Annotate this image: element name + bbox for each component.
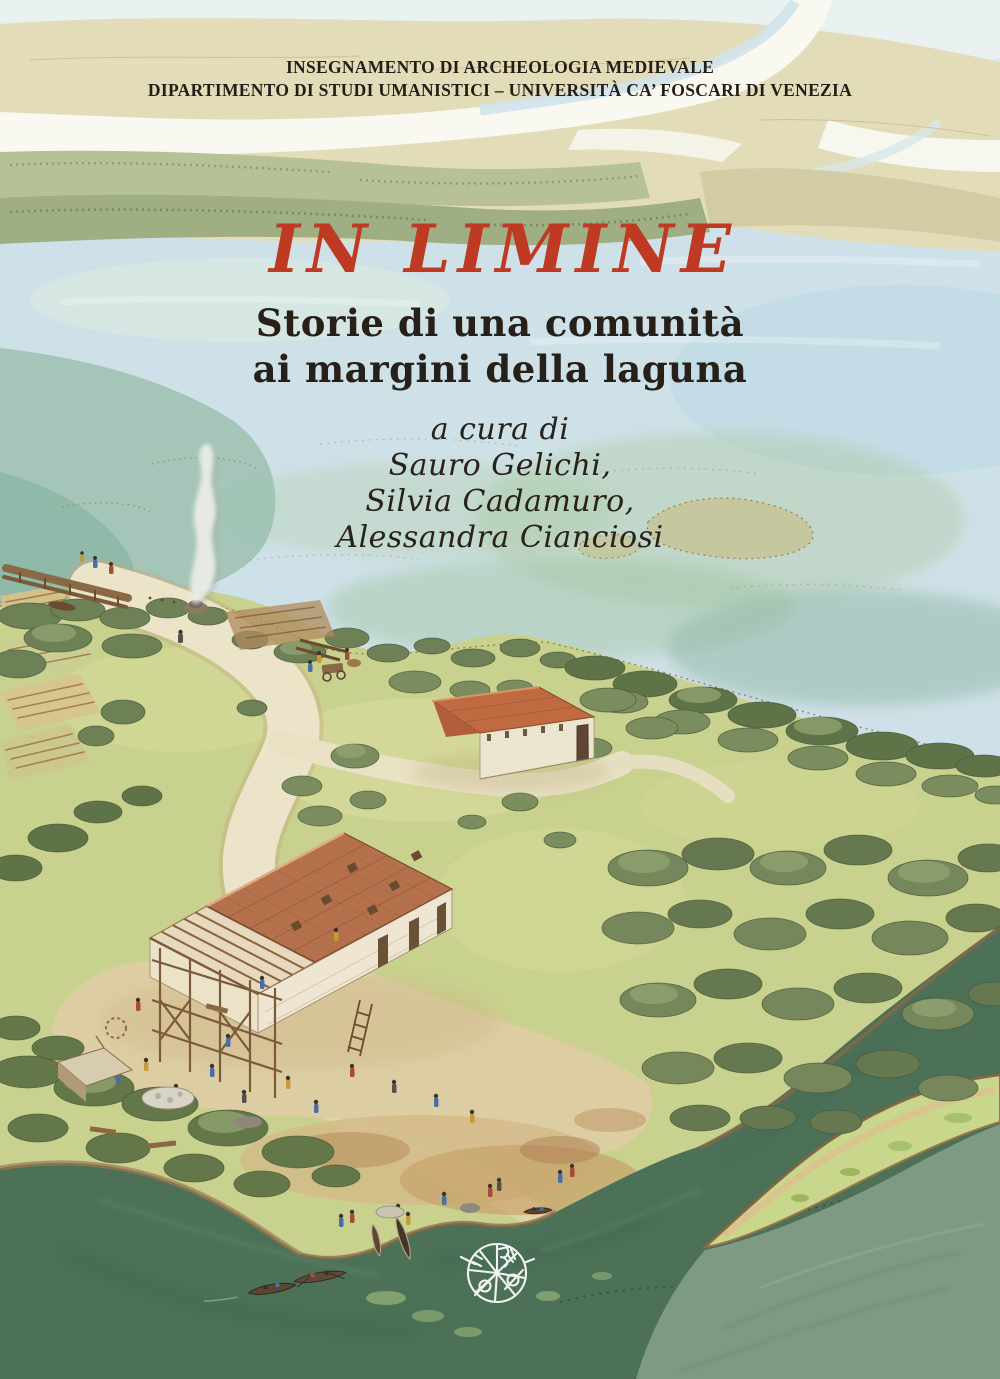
distant-land <box>0 0 1000 252</box>
lagoon-watercolor-illustration <box>0 0 1000 1379</box>
book-cover: INSEGNAMENTO DI ARCHEOLOGIA MEDIEVALE DI… <box>0 0 1000 1379</box>
